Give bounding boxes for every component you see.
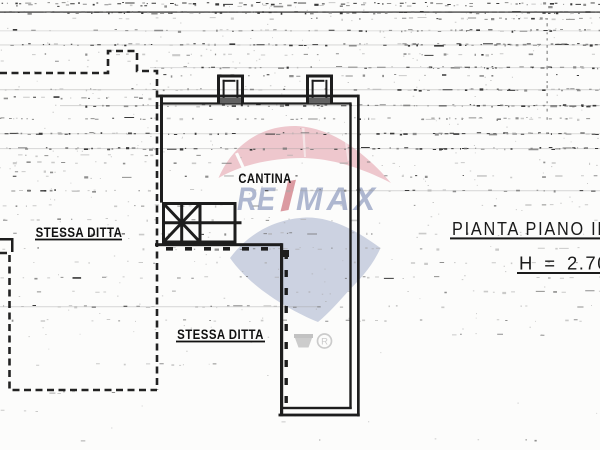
svg-text:CANTINA: CANTINA [238, 171, 291, 186]
svg-text:PIANTA PIANO INT: PIANTA PIANO INT [452, 218, 600, 239]
svg-text:RE: RE [237, 182, 276, 218]
svg-text:H = 2.70: H = 2.70 [519, 253, 600, 274]
svg-text:R: R [321, 337, 328, 348]
svg-text:MAX: MAX [296, 181, 379, 217]
svg-text:STESSA DITTA: STESSA DITTA [177, 327, 264, 342]
svg-text:STESSA DITTA: STESSA DITTA [36, 225, 123, 240]
